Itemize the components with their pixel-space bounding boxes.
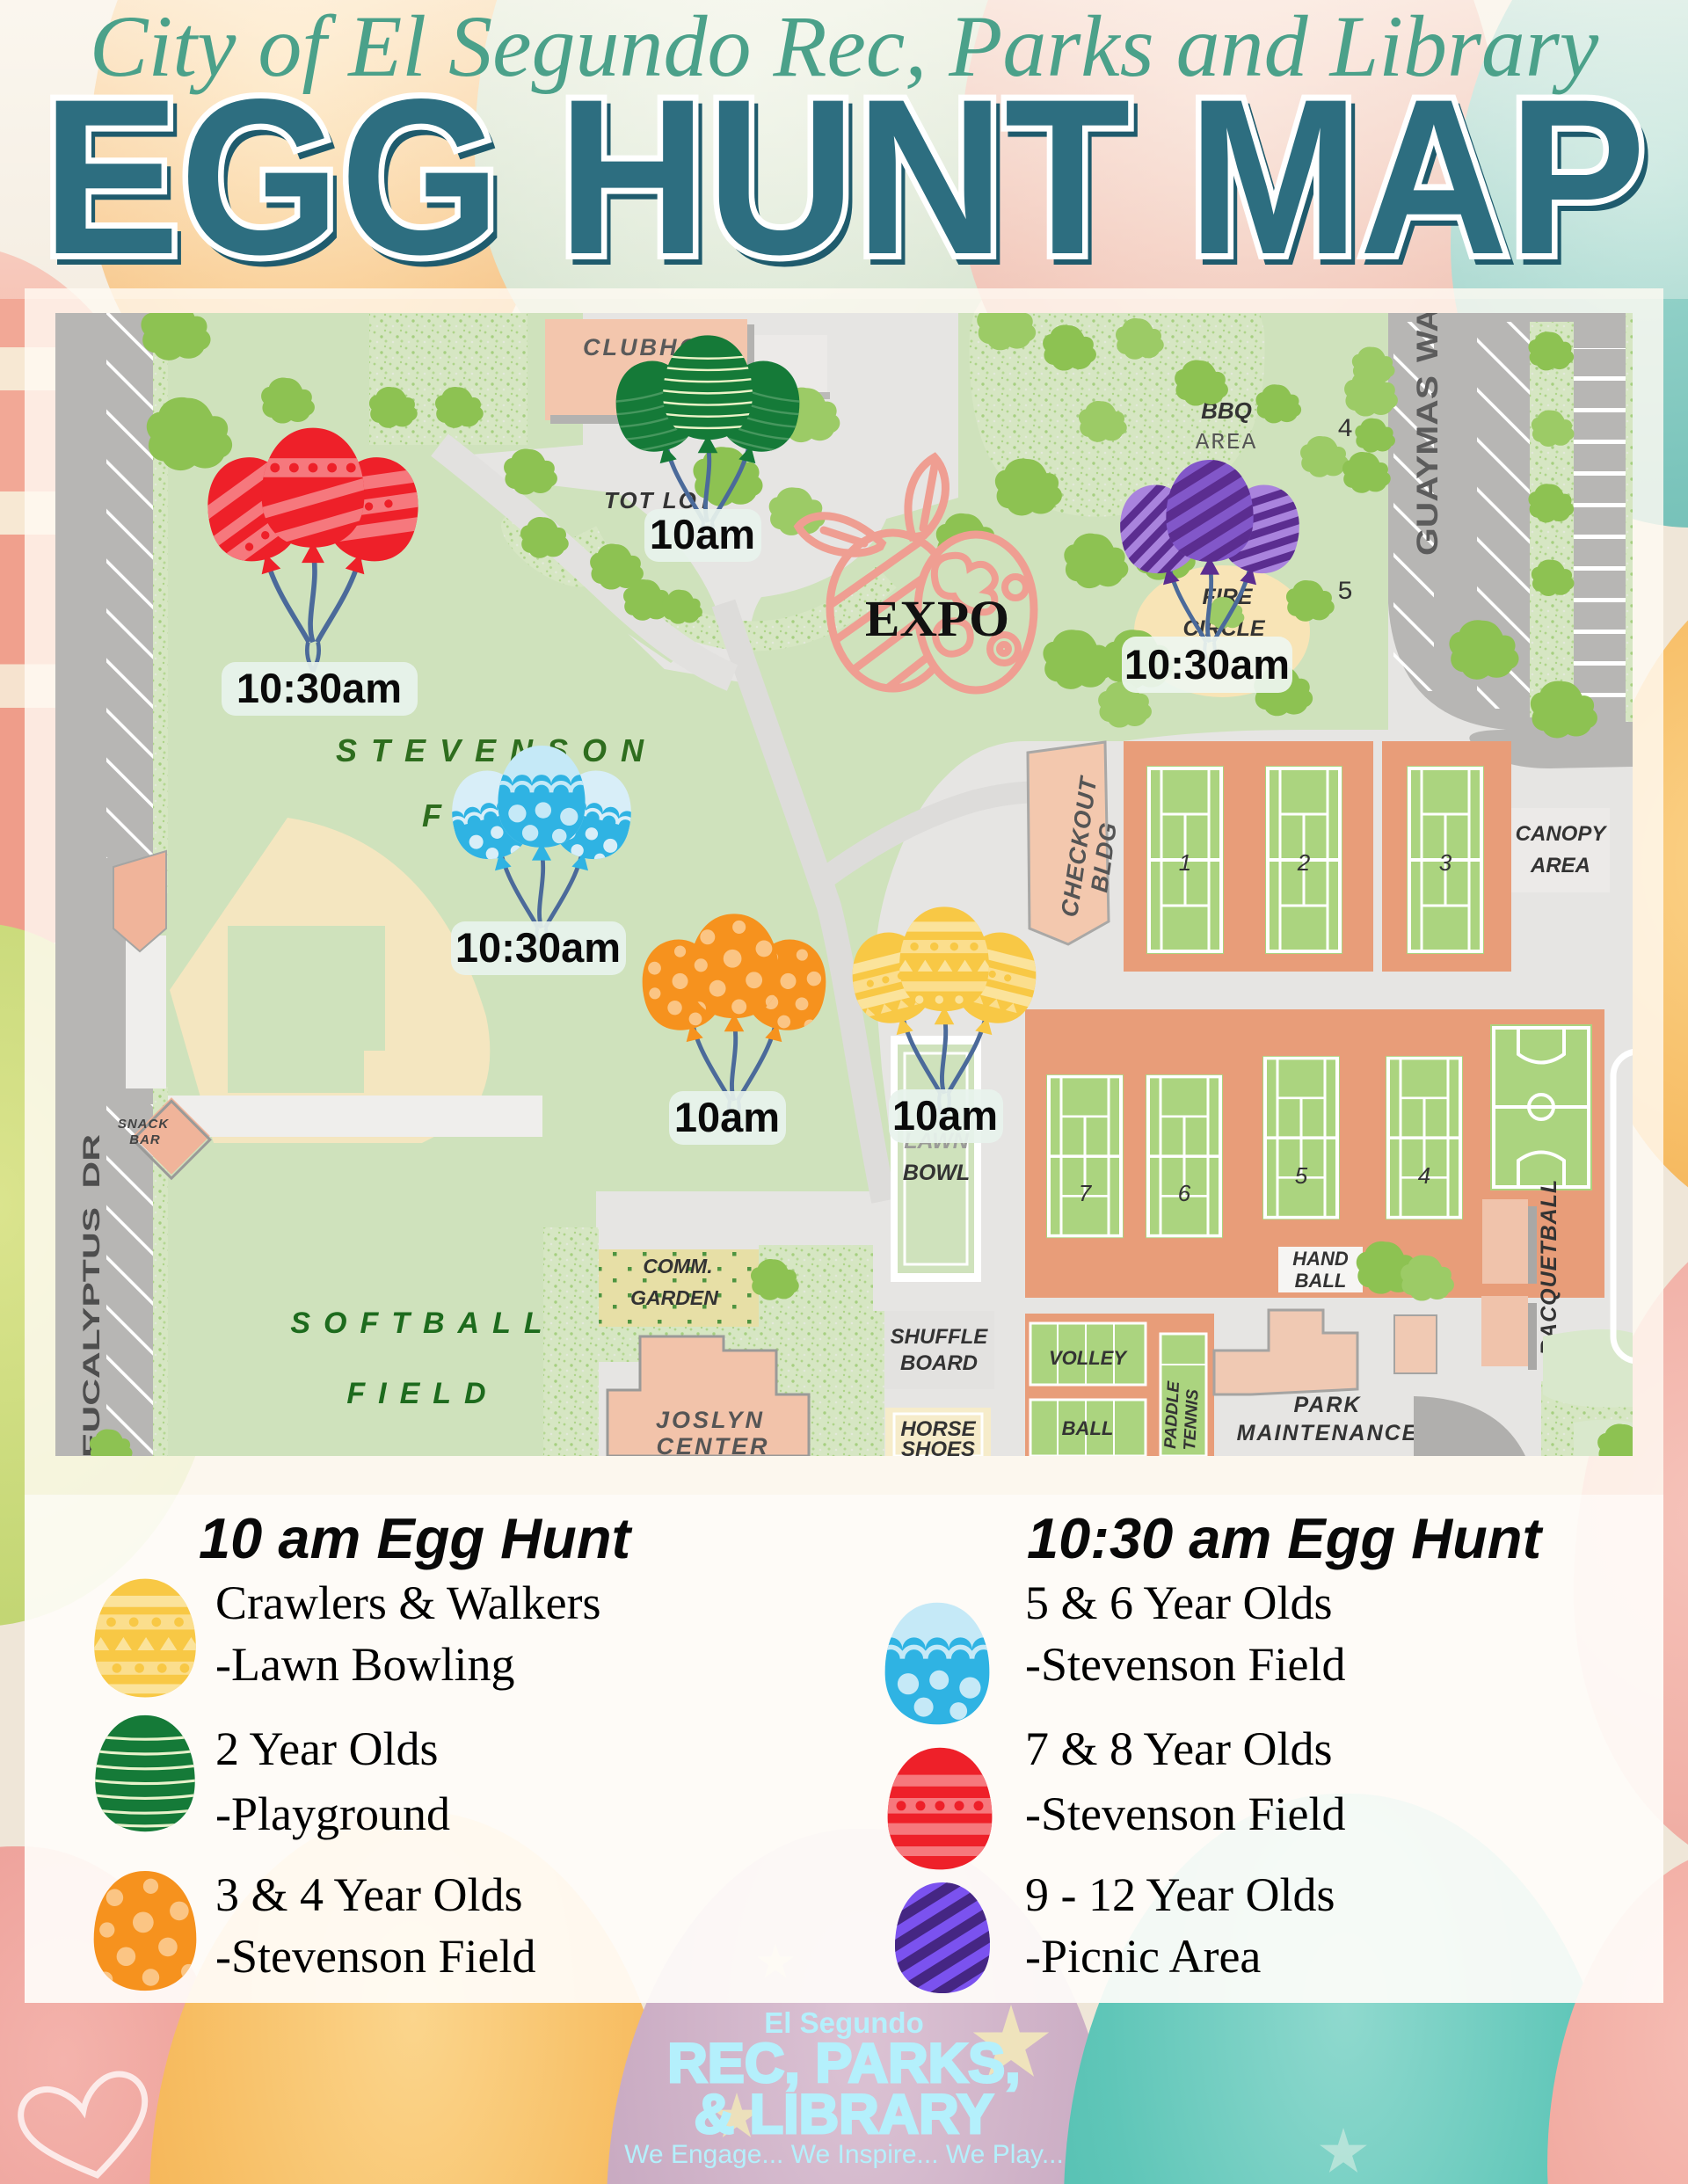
svg-text:BOARD: BOARD [900,1351,978,1375]
svg-text:GARDEN: GARDEN [630,1286,718,1309]
svg-text:5: 5 [1337,578,1353,608]
svg-text:PADDLE: PADDLE [1161,1380,1183,1449]
svg-text:SOFTBALL: SOFTBALL [290,1307,555,1340]
svg-text:RACQUETBALL: RACQUETBALL [1537,1179,1561,1356]
svg-text:2: 2 [1297,849,1311,876]
svg-text:SNACK: SNACK [118,1117,170,1132]
svg-text:BALL: BALL [1295,1270,1347,1292]
svg-text:10:30am: 10:30am [236,665,402,711]
svg-text:CANOPY: CANOPY [1516,822,1608,846]
svg-text:BALL: BALL [1062,1417,1114,1439]
svg-text:SHOES: SHOES [901,1438,975,1456]
svg-text:MAINTENANCE: MAINTENANCE [1237,1421,1419,1445]
svg-text:GUAYMAS: GUAYMAS [1411,375,1444,556]
svg-text:10am: 10am [674,1094,780,1140]
svg-text:F: F [422,797,455,834]
svg-text:10am: 10am [892,1092,998,1139]
svg-text:VOLLEY: VOLLEY [1049,1347,1128,1369]
svg-text:AREA: AREA [1196,429,1257,455]
svg-text:5: 5 [1295,1162,1308,1189]
svg-text:HAND: HAND [1292,1248,1349,1270]
svg-text:FIELD: FIELD [346,1377,498,1410]
svg-text:EXPO: EXPO [865,590,1009,647]
svg-text:10:30am: 10:30am [455,924,621,971]
svg-text:EGG HUNT MAP: EGG HUNT MAP [42,63,1646,292]
svg-text:EUCALYPTUS DR: EUCALYPTUS DR [78,1134,105,1456]
svg-text:10:30am: 10:30am [1124,641,1290,688]
svg-text:BAR: BAR [129,1132,161,1147]
svg-text:1: 1 [1179,849,1191,876]
svg-text:CENTER: CENTER [656,1433,769,1456]
svg-text:STEVENSON: STEVENSON [336,732,658,768]
svg-text:4: 4 [1337,415,1353,445]
svg-text:3: 3 [1439,849,1452,876]
svg-text:AREA: AREA [1530,854,1590,877]
svg-text:PARK: PARK [1294,1393,1362,1417]
svg-text:SHUFFLE: SHUFFLE [891,1325,989,1349]
svg-text:COMM.: COMM. [643,1255,712,1278]
svg-text:WA: WA [1411,313,1444,362]
svg-text:10am: 10am [650,511,755,557]
svg-text:BOWL: BOWL [903,1161,970,1185]
svg-text:JOSLYN: JOSLYN [656,1407,765,1433]
svg-text:TENNIS: TENNIS [1181,1388,1203,1451]
svg-text:6: 6 [1178,1180,1191,1206]
svg-text:7: 7 [1079,1180,1093,1206]
svg-text:4: 4 [1418,1162,1430,1189]
